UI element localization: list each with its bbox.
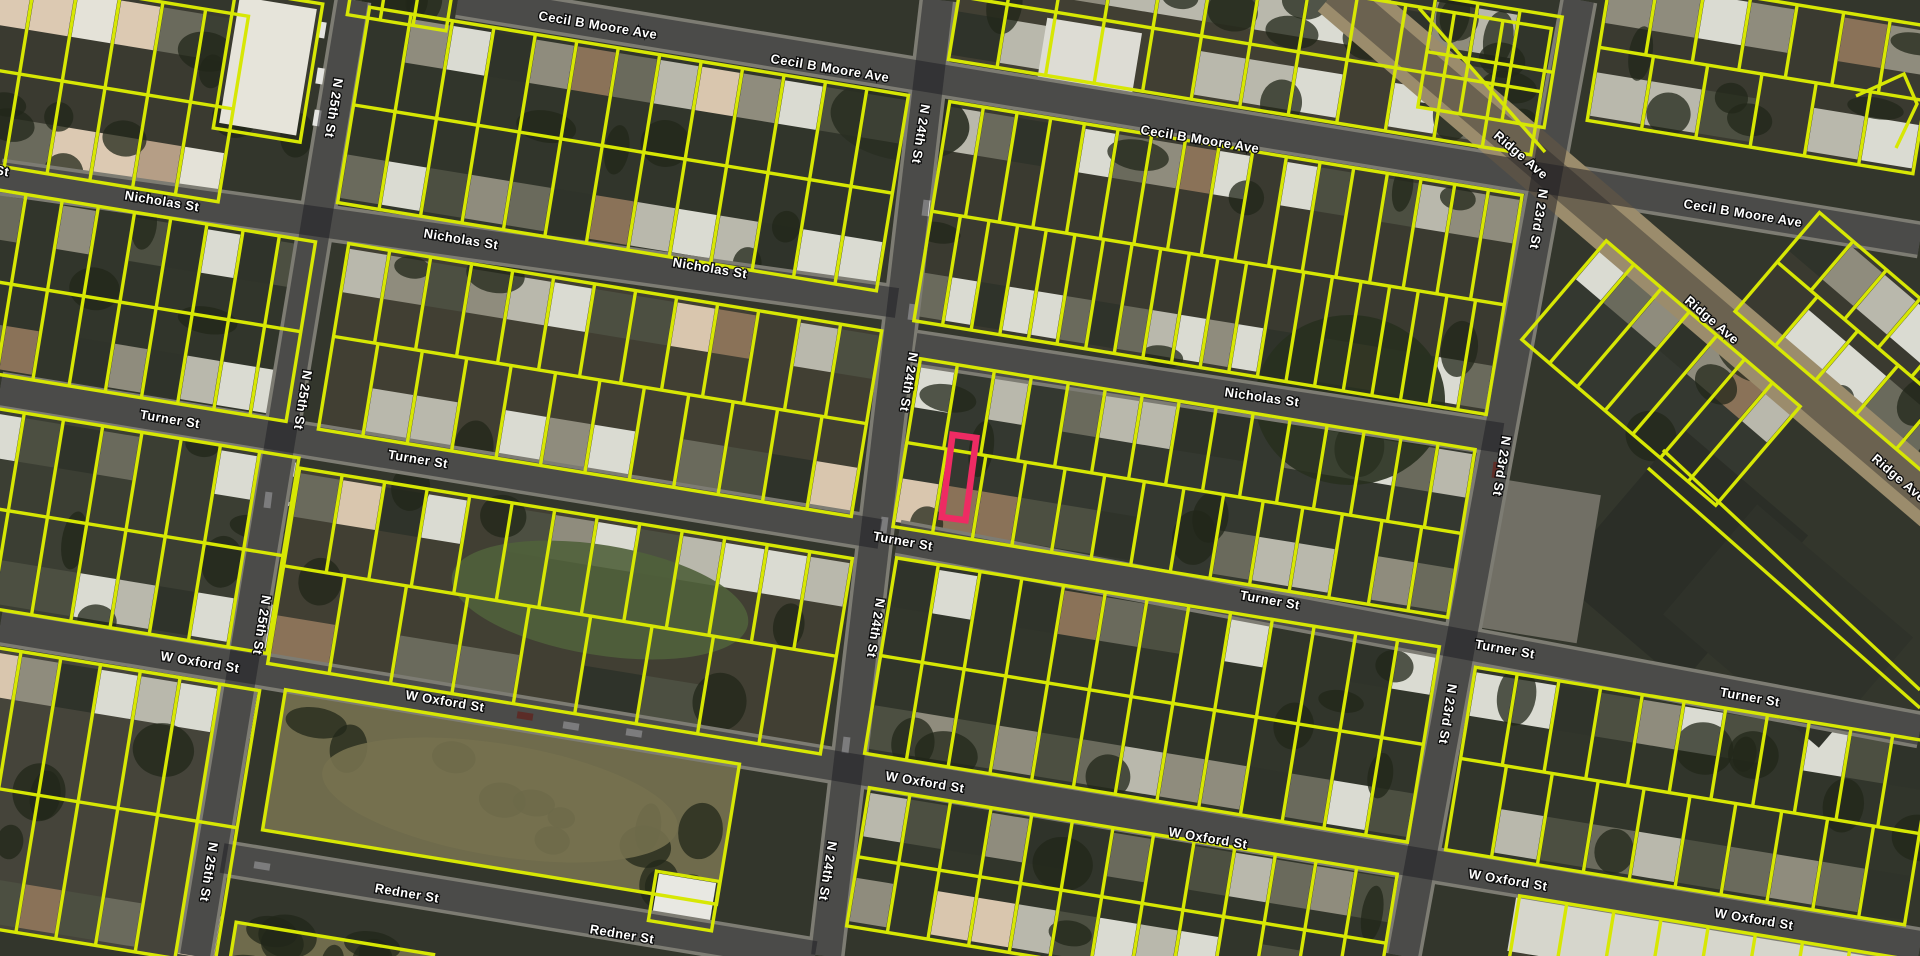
aerial-parcel-map[interactable]: Cecil B Moore AveCecil B Moore AveCecil … — [0, 0, 1920, 956]
map-canvas[interactable]: Cecil B Moore AveCecil B Moore AveCecil … — [0, 0, 1920, 956]
